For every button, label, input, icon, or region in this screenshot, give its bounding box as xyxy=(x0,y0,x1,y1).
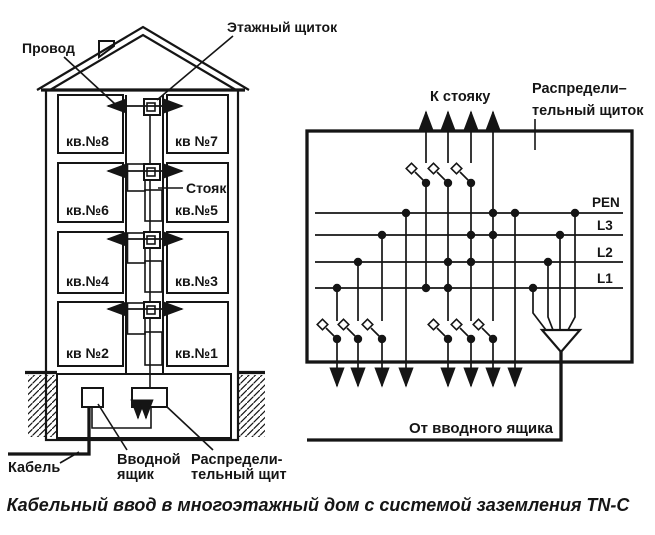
apartment-label-8: кв.№8 xyxy=(66,133,109,149)
caption: Кабельный ввод в многоэтажный дом с сист… xyxy=(7,495,631,515)
input-funnel-icon xyxy=(542,330,580,352)
floor-panel-label: Этажный щиток xyxy=(227,19,338,35)
box-connector-line xyxy=(92,407,151,428)
switch-icon xyxy=(338,319,362,343)
apartment-label-4: кв.№4 xyxy=(66,273,109,289)
riser-feed-lines xyxy=(426,112,493,321)
apartment-label-6: кв.№6 xyxy=(66,202,109,218)
ground-hatch-left xyxy=(28,375,56,437)
dist-board-label-line2: тельный щит xyxy=(191,467,287,483)
bus-label-pen: PEN xyxy=(592,195,620,210)
wire-pointer xyxy=(64,57,115,104)
building-section: Провод Этажный щиток Стояк кв.№8 кв №7 к… xyxy=(8,19,338,483)
to-riser-label: К стояку xyxy=(430,89,490,105)
panel-label-line1: Распредели– xyxy=(532,81,627,97)
switch-icon xyxy=(317,319,341,343)
panel-outline xyxy=(307,131,632,362)
ground-hatch-right xyxy=(239,375,265,437)
diagram-page: Провод Этажный щиток Стояк кв.№8 кв №7 к… xyxy=(0,0,655,535)
floor-panel-icons xyxy=(144,99,160,318)
switch-icon xyxy=(451,319,475,343)
apartment-label-1: кв.№1 xyxy=(175,345,218,361)
dist-board-label-line1: Распредели- xyxy=(191,452,283,468)
bus-label-l1: L1 xyxy=(597,271,613,286)
bus-label-l3: L3 xyxy=(597,218,613,233)
apartment-label-7: кв №7 xyxy=(175,133,218,149)
apartment-label-2: кв №2 xyxy=(66,345,109,361)
stair-ladder xyxy=(128,303,146,334)
feeder-group-1 xyxy=(337,213,406,386)
stair-ladder xyxy=(145,332,162,365)
distribution-panel-schematic: К стояку Распредели– тельный щиток PEN L… xyxy=(307,81,644,440)
switch-icon xyxy=(406,163,430,187)
stair-ladder xyxy=(128,164,146,191)
distribution-board-box xyxy=(132,388,167,407)
stair-ladder xyxy=(145,261,162,292)
roof-outer-line xyxy=(37,27,249,90)
switch-icon xyxy=(362,319,386,343)
wire-label: Провод xyxy=(22,40,75,56)
switch-icon xyxy=(451,163,475,187)
apartment-label-5: кв.№5 xyxy=(175,202,218,218)
junction-dots xyxy=(333,209,579,292)
switch-icon xyxy=(428,163,452,187)
roof-inner-line xyxy=(50,35,236,90)
panel-label-line2: тельный щиток xyxy=(532,103,644,119)
feeder-group-2 xyxy=(448,213,515,386)
switch-icon xyxy=(473,319,497,343)
stair-ladder xyxy=(128,233,146,263)
switch-icon xyxy=(428,319,452,343)
cable-label: Кабель xyxy=(8,460,60,476)
input-box-pointer xyxy=(98,404,127,450)
input-box-label-line1: Вводной xyxy=(117,452,181,468)
from-input-label: От вводного ящика xyxy=(409,420,554,437)
input-box-label-line2: ящик xyxy=(117,467,155,483)
cable-entry-diagram: Провод Этажный щиток Стояк кв.№8 кв №7 к… xyxy=(0,0,655,535)
input-box xyxy=(82,388,103,407)
apartment-label-3: кв.№3 xyxy=(175,273,218,289)
incoming-supply xyxy=(307,213,580,440)
dist-board-pointer xyxy=(166,406,213,450)
stair-ladder xyxy=(145,190,162,221)
riser-label: Стояк xyxy=(186,180,227,196)
bus-label-l2: L2 xyxy=(597,245,613,260)
